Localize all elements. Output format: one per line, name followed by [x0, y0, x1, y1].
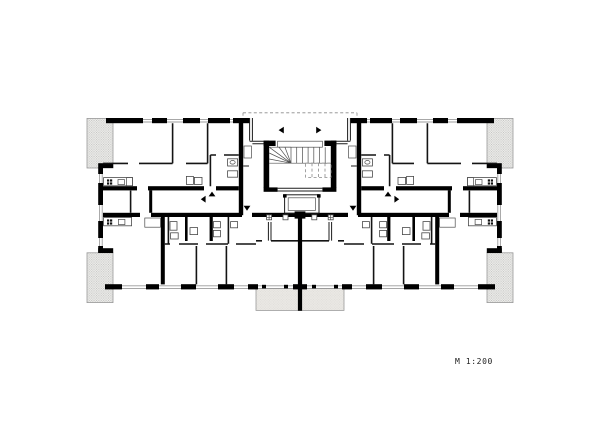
plan-sheet: M 1:200	[0, 0, 600, 424]
facade-south	[105, 284, 300, 289]
plan-right-half	[300, 118, 513, 310]
facade-west	[98, 163, 113, 253]
balcony-hatch-sw	[87, 253, 113, 303]
canopy-dashed-outline	[243, 113, 357, 118]
fixtures	[104, 146, 252, 239]
facade-north	[106, 118, 250, 123]
walls-thick	[103, 118, 300, 284]
core	[243, 113, 357, 311]
entrance-recess-wall	[250, 118, 264, 144]
floor-plan-drawing: M 1:200	[0, 0, 600, 424]
scale-label: M 1:200	[455, 357, 493, 366]
balcony-hatch-nw	[87, 118, 113, 168]
stair	[269, 141, 331, 191]
plan-left-half	[87, 118, 300, 310]
elevator	[283, 194, 321, 213]
balcony-rear-left	[256, 289, 300, 311]
party-wall-center	[298, 213, 302, 311]
